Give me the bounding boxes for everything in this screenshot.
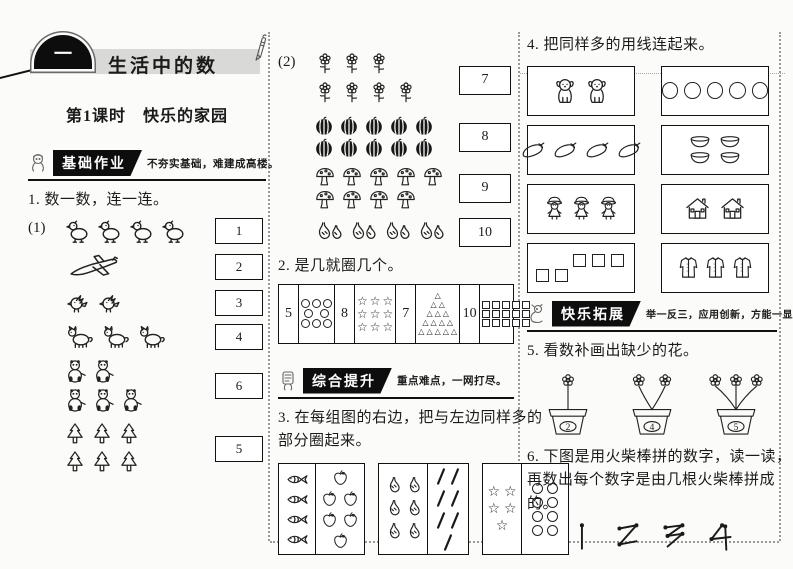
table-number: 7: [396, 285, 416, 343]
icon-row: [382, 499, 424, 519]
icon-row: [64, 290, 215, 315]
answer-number: 3: [236, 295, 243, 311]
fish-icon: [285, 491, 310, 508]
girl-icon: [544, 195, 565, 222]
triangle-icon: △: [431, 319, 437, 327]
section-expansion-label: 快乐拓展: [552, 301, 641, 327]
watermelon-icon: [389, 116, 409, 136]
pear-icon: [405, 476, 421, 496]
circle-icon: [323, 299, 332, 308]
coat-icon: [732, 255, 753, 280]
eggplant-icon: [616, 141, 642, 159]
svg-text:2: 2: [566, 423, 571, 433]
picture-group: [304, 116, 459, 158]
q3-title-line1: 3. 在每组图的右边，把与左边同样多的: [278, 407, 514, 430]
matchstick-digit-1: [568, 520, 598, 554]
circle-icon: [301, 299, 310, 308]
triangle-icon: △: [443, 310, 449, 318]
flower-pot: 4: [619, 366, 685, 438]
square-icon: [502, 319, 510, 327]
triangle-icon: △: [439, 301, 445, 309]
icon-row: [319, 532, 361, 550]
q4-title: 4. 把同样多的用线连起来。: [527, 34, 777, 57]
icon-row: [662, 196, 768, 221]
flower-icon: [341, 81, 363, 108]
answer-number: 7: [482, 72, 489, 88]
apple-icon: [332, 469, 349, 487]
table-shape-cell: [299, 285, 335, 343]
q6-title: 6. 下图是用火柴棒拼的数字，读一读， 再数出每个数字是由几根火柴棒拼成 的。: [527, 446, 777, 516]
star-icon: ☆: [370, 308, 381, 320]
girl-icon: [598, 195, 619, 222]
circle-icon: [301, 319, 310, 328]
icon-row: [64, 387, 215, 414]
answer-box: 8: [459, 123, 511, 152]
house-icon: [683, 196, 712, 221]
tree-icon: [64, 450, 86, 476]
picture-box: [661, 184, 769, 234]
square-icon: [502, 310, 510, 318]
icon-row: [314, 138, 459, 158]
square-icon: [512, 310, 520, 318]
section-comprehensive-label: 综合提升: [303, 368, 392, 394]
square-icon: [502, 301, 510, 309]
airplane-icon: [64, 252, 122, 282]
apple-icon: [321, 511, 338, 529]
cell-number: 7: [402, 306, 409, 322]
lesson-title: 第1课时 快乐的家园: [28, 102, 266, 126]
table-number: 8: [335, 285, 355, 343]
section-basic: 基础作业 不夯实基础，难建成高楼。: [28, 150, 266, 181]
pear-icon: [405, 522, 421, 542]
square-icon: [482, 319, 490, 327]
apple-icon: [321, 490, 338, 508]
exercise1-part2-rows: 78910: [304, 52, 514, 247]
square-icon: [573, 254, 586, 267]
icon-row: [382, 522, 424, 542]
icon-row: [282, 491, 312, 508]
answer-number: 2: [236, 259, 243, 275]
circle-icon: [312, 299, 321, 308]
icon-row: [482, 319, 530, 327]
circle-icon: [752, 82, 768, 99]
watermelon-icon: [414, 138, 434, 158]
icon-row: [314, 81, 459, 108]
answer-box: 6: [215, 373, 263, 399]
count-row: 1: [54, 218, 266, 244]
mushroom-icon: [341, 166, 363, 187]
flower-icon: [395, 81, 417, 108]
section-comprehensive-slogan: 重点难点，一网打尽。: [397, 373, 507, 388]
triangle-icon: △: [443, 328, 449, 336]
answer-box: 7: [459, 66, 511, 95]
exercise1-part1: (1) 123465: [28, 218, 266, 476]
icon-row: [301, 319, 332, 328]
fish-icon: [285, 511, 310, 528]
q3-title-line2: 部分圈起来。: [278, 430, 514, 453]
count-row: 6: [54, 358, 266, 414]
square-icon: [512, 319, 520, 327]
icon-row: △△: [431, 301, 445, 309]
table-shape-cell: [480, 285, 532, 343]
icon-row: [431, 533, 465, 552]
watermelon-icon: [389, 138, 409, 158]
icon-row: [64, 218, 215, 244]
section-comprehensive: 综合提升 重点难点，一网打尽。: [278, 368, 514, 399]
bowl-icon: [688, 151, 712, 165]
picture-group: [304, 220, 459, 245]
worksheet-page: 一 生活中的数 第1课时 快乐的家园 基础作业 不夯实基础，难建成高楼。: [0, 0, 793, 569]
watermelon-icon: [364, 116, 384, 136]
mushroom-icon: [314, 166, 336, 187]
icon-row: [319, 469, 361, 487]
mascot-icon: [527, 303, 547, 325]
watermelon-icon: [314, 116, 334, 136]
unit-number-badge: 一: [34, 35, 92, 69]
left-pictures: ☆☆☆☆☆: [483, 464, 522, 554]
stick-icon: [436, 467, 446, 486]
icon-row: △: [435, 292, 441, 300]
q2-title: 2. 是几就圈几个。: [278, 255, 514, 278]
stick-icon: [436, 489, 446, 508]
watermelon-icon: [339, 138, 359, 158]
picture-group: [54, 358, 215, 414]
answer-box: 2: [215, 254, 263, 280]
bird-icon: [64, 290, 91, 315]
section-expansion: 快乐拓展 举一反三，应用创新，方能一显身手！: [527, 301, 777, 332]
table-number: 10: [460, 285, 480, 343]
square-icon: [492, 319, 500, 327]
right-column: 4. 把同样多的用线连起来。 快乐拓展 举一反三，应用创新，方能一显身手！ 5.…: [527, 30, 777, 554]
duck-icon: [64, 218, 91, 244]
icon-row: △△△: [426, 310, 448, 318]
fox-icon: [136, 324, 167, 349]
triangle-icon: △: [435, 310, 441, 318]
star-icon: ☆: [370, 295, 381, 307]
circle-icon: [304, 309, 313, 318]
coat-icon: [705, 255, 726, 280]
bowl-icon: [688, 135, 712, 149]
answer-number: 5: [236, 441, 243, 457]
apple-icon: [332, 532, 349, 550]
pear-pair-icon: [416, 220, 445, 245]
picture-group: [304, 166, 459, 210]
icon-row: [528, 254, 634, 267]
fish-icon: [285, 531, 310, 548]
star-icon: ☆: [383, 295, 394, 307]
duck-icon: [160, 218, 187, 244]
mushroom-icon: [395, 166, 417, 187]
section-basic-label: 基础作业: [53, 150, 142, 176]
stick-icon: [436, 511, 446, 530]
exercise3-groups: ☆☆☆☆☆: [278, 463, 514, 555]
answer-box: 9: [459, 174, 511, 203]
pear-icon: [385, 476, 401, 496]
pencil-icon: [252, 32, 270, 62]
left-pictures: [279, 464, 316, 554]
matching-grid: [527, 66, 777, 293]
picture-group: [54, 252, 215, 282]
picture-box: [527, 66, 635, 116]
apple-icon: [342, 511, 359, 529]
house-icon: [718, 196, 747, 221]
picture-box: [661, 125, 769, 175]
stick-icon: [450, 489, 460, 508]
pear-pair-icon: [382, 220, 411, 245]
middle-column: (2) 78910 2. 是几就圈几个。 58☆☆☆☆☆☆☆☆☆7△△△△△△△…: [278, 30, 514, 555]
cell-number: 10: [463, 306, 477, 322]
tree-icon: [91, 450, 113, 476]
square-icon: [592, 254, 605, 267]
panda-icon: [64, 358, 87, 385]
answer-box: 4: [215, 324, 263, 350]
watermelon-icon: [339, 116, 359, 136]
circle-icon: [707, 82, 723, 99]
picture-box: [661, 66, 769, 116]
star-icon: ☆: [496, 519, 509, 533]
flower-icon: [341, 52, 363, 79]
icon-row: ☆☆☆: [357, 295, 393, 307]
unit-number: 一: [54, 45, 72, 69]
icon-row: [64, 358, 215, 385]
right-pictures: [316, 464, 364, 554]
triangle-icon: △: [451, 328, 457, 336]
panda-icon: [92, 358, 115, 385]
count-row: 7: [304, 52, 514, 108]
triangle-icon: △: [426, 328, 432, 336]
dog-icon: [584, 77, 610, 105]
answer-box: 1: [215, 218, 263, 244]
count-row: 8: [304, 116, 514, 158]
cell-number: 5: [285, 306, 292, 322]
left-pictures: [379, 464, 428, 554]
table-number: 5: [279, 285, 299, 343]
icon-row: △△△△△: [418, 328, 457, 336]
picture-box: [527, 125, 635, 175]
icon-row: [282, 511, 312, 528]
mushroom-icon: [341, 189, 363, 210]
picture-box: [527, 243, 635, 293]
coat-icon: [678, 255, 699, 280]
circle-icon: [662, 82, 678, 99]
duck-icon: [128, 218, 155, 244]
part1-label: (1): [28, 218, 54, 476]
panda-icon: [64, 387, 87, 414]
triangle-icon: △: [435, 292, 441, 300]
triangle-icon: △: [418, 328, 424, 336]
icon-row: △△△△: [422, 319, 453, 327]
icon-row: [319, 490, 361, 508]
icon-row: [314, 189, 459, 210]
fox-icon: [100, 324, 131, 349]
tree-icon: [118, 450, 140, 476]
icon-row: [282, 471, 312, 488]
flower-icon: [314, 52, 336, 79]
icon-row: [528, 195, 634, 222]
picture-group: [54, 218, 215, 244]
icon-row: [528, 141, 634, 159]
svg-text:4: 4: [650, 423, 655, 433]
bowl-icon: [718, 151, 742, 165]
icon-row: [314, 166, 459, 187]
q6-title-line3: 的。: [527, 493, 777, 516]
flower-pot: 5: [703, 366, 769, 438]
matchstick-digits: [527, 520, 777, 554]
circle-icon: [684, 82, 700, 99]
icon-row: [662, 135, 768, 149]
star-icon: ☆: [383, 321, 394, 333]
pear-pair-icon: [314, 220, 343, 245]
icon-row: [64, 252, 215, 282]
icon-row: [64, 422, 215, 448]
count-row: 3: [54, 290, 266, 316]
eggplant-icon: [584, 141, 610, 159]
count-row: 2: [54, 252, 266, 282]
answer-number: 6: [236, 378, 243, 394]
icon-row: [482, 310, 530, 318]
compare-box: [378, 463, 469, 555]
section-expansion-slogan: 举一反三，应用创新，方能一显身手！: [646, 306, 793, 321]
unit-header: 一 生活中的数: [28, 44, 266, 78]
mushroom-icon: [368, 166, 390, 187]
answer-box: 10: [459, 218, 511, 247]
compare-box: [278, 463, 365, 555]
icon-row: [64, 450, 215, 476]
q1-title: 1. 数一数，连一连。: [28, 189, 266, 212]
panda-icon: [120, 387, 143, 414]
icon-row: [431, 467, 465, 486]
square-icon: [492, 310, 500, 318]
circle-icon: [312, 319, 321, 328]
icon-row: [482, 301, 530, 309]
answer-number: 9: [482, 180, 489, 196]
section-basic-slogan: 不夯实基础，难建成高楼。: [147, 156, 279, 171]
table-shape-cell: ☆☆☆☆☆☆☆☆☆: [355, 285, 396, 343]
star-icon: ☆: [504, 485, 517, 499]
picture-group: [54, 290, 215, 315]
flower-pot: 2: [535, 366, 601, 438]
icon-row: [64, 324, 215, 349]
square-icon: [482, 301, 490, 309]
square-icon: [555, 269, 568, 282]
answer-box: 3: [215, 290, 263, 316]
triangle-icon: △: [447, 319, 453, 327]
circle-count-table: 58☆☆☆☆☆☆☆☆☆7△△△△△△△△△△△△△△△10: [278, 284, 514, 344]
square-icon: [482, 310, 490, 318]
count-row: 9: [304, 166, 514, 210]
icon-row: ☆☆☆: [357, 308, 393, 320]
bird-icon: [96, 290, 123, 315]
answer-number: 8: [482, 129, 489, 145]
square-icon: [536, 269, 549, 282]
pear-icon: [385, 499, 401, 519]
icon-row: [431, 489, 465, 508]
icon-row: [662, 255, 768, 280]
matchstick-digit-2: [614, 520, 644, 554]
q5-title: 5. 看数补画出缺少的花。: [527, 340, 777, 363]
star-icon: ☆: [383, 308, 394, 320]
girl-icon: [571, 195, 592, 222]
count-row: 4: [54, 324, 266, 350]
icon-row: ☆☆☆: [357, 321, 393, 333]
matchstick-digit-4: [706, 520, 736, 554]
triangle-icon: △: [435, 328, 441, 336]
pear-icon: [385, 522, 401, 542]
circle-icon: [323, 319, 332, 328]
apple-icon: [342, 490, 359, 508]
star-icon: ☆: [357, 308, 368, 320]
mushroom-icon: [422, 166, 444, 187]
picture-group: [304, 52, 459, 108]
column-divider: [268, 32, 270, 541]
flower-icon: [368, 81, 390, 108]
count-row: 5: [54, 422, 266, 476]
icon-row: [282, 531, 312, 548]
triangle-icon: △: [431, 301, 437, 309]
eggplant-icon: [552, 141, 578, 159]
cell-number: 8: [341, 306, 348, 322]
left-column: 一 生活中的数 第1课时 快乐的家园 基础作业 不夯实基础，难建成高楼。: [28, 30, 266, 476]
picture-box: [661, 243, 769, 293]
icon-row: [304, 309, 329, 318]
circle-icon: [320, 309, 329, 318]
triangle-icon: △: [426, 310, 432, 318]
tree-icon: [64, 422, 86, 448]
icon-row: [382, 476, 424, 496]
fish-icon: [285, 471, 310, 488]
stick-icon: [450, 511, 460, 530]
svg-text:5: 5: [734, 423, 739, 433]
answer-number: 1: [236, 223, 243, 239]
mascot-icon: [28, 152, 48, 174]
flower-icon: [368, 52, 390, 79]
star-icon: ☆: [357, 295, 368, 307]
icon-row: [314, 220, 459, 245]
icon-row: [431, 511, 465, 530]
stick-icon: [450, 467, 460, 486]
matchstick-digit-3: [660, 520, 690, 554]
star-icon: ☆: [370, 321, 381, 333]
unit-title: 生活中的数: [108, 51, 218, 78]
picture-group: [54, 422, 215, 476]
pear-icon: [405, 499, 421, 519]
icon-row: [662, 151, 768, 165]
flower-pots: 245: [527, 366, 777, 438]
icon-row: [301, 299, 332, 308]
icon-row: ☆☆: [486, 485, 518, 499]
mushroom-icon: [395, 189, 417, 210]
mushroom-icon: [314, 189, 336, 210]
panda-icon: [92, 387, 115, 414]
tree-icon: [118, 422, 140, 448]
mascot-icon: [278, 370, 298, 392]
icon-row: [314, 116, 459, 136]
square-icon: [512, 301, 520, 309]
bowl-icon: [718, 135, 742, 149]
star-icon: ☆: [504, 502, 517, 516]
q3-title: 3. 在每组图的右边，把与左边同样多的 部分圈起来。: [278, 407, 514, 454]
icon-row: [662, 82, 768, 99]
watermelon-icon: [414, 116, 434, 136]
dog-icon: [552, 77, 578, 105]
watermelon-icon: [364, 138, 384, 158]
triangle-icon: △: [439, 319, 445, 327]
pear-pair-icon: [348, 220, 377, 245]
duck-icon: [96, 218, 123, 244]
square-icon: [611, 254, 624, 267]
q6-title-line2: 再数出每个数字是由几根火柴棒拼成: [527, 469, 777, 492]
icon-row: [319, 511, 361, 529]
